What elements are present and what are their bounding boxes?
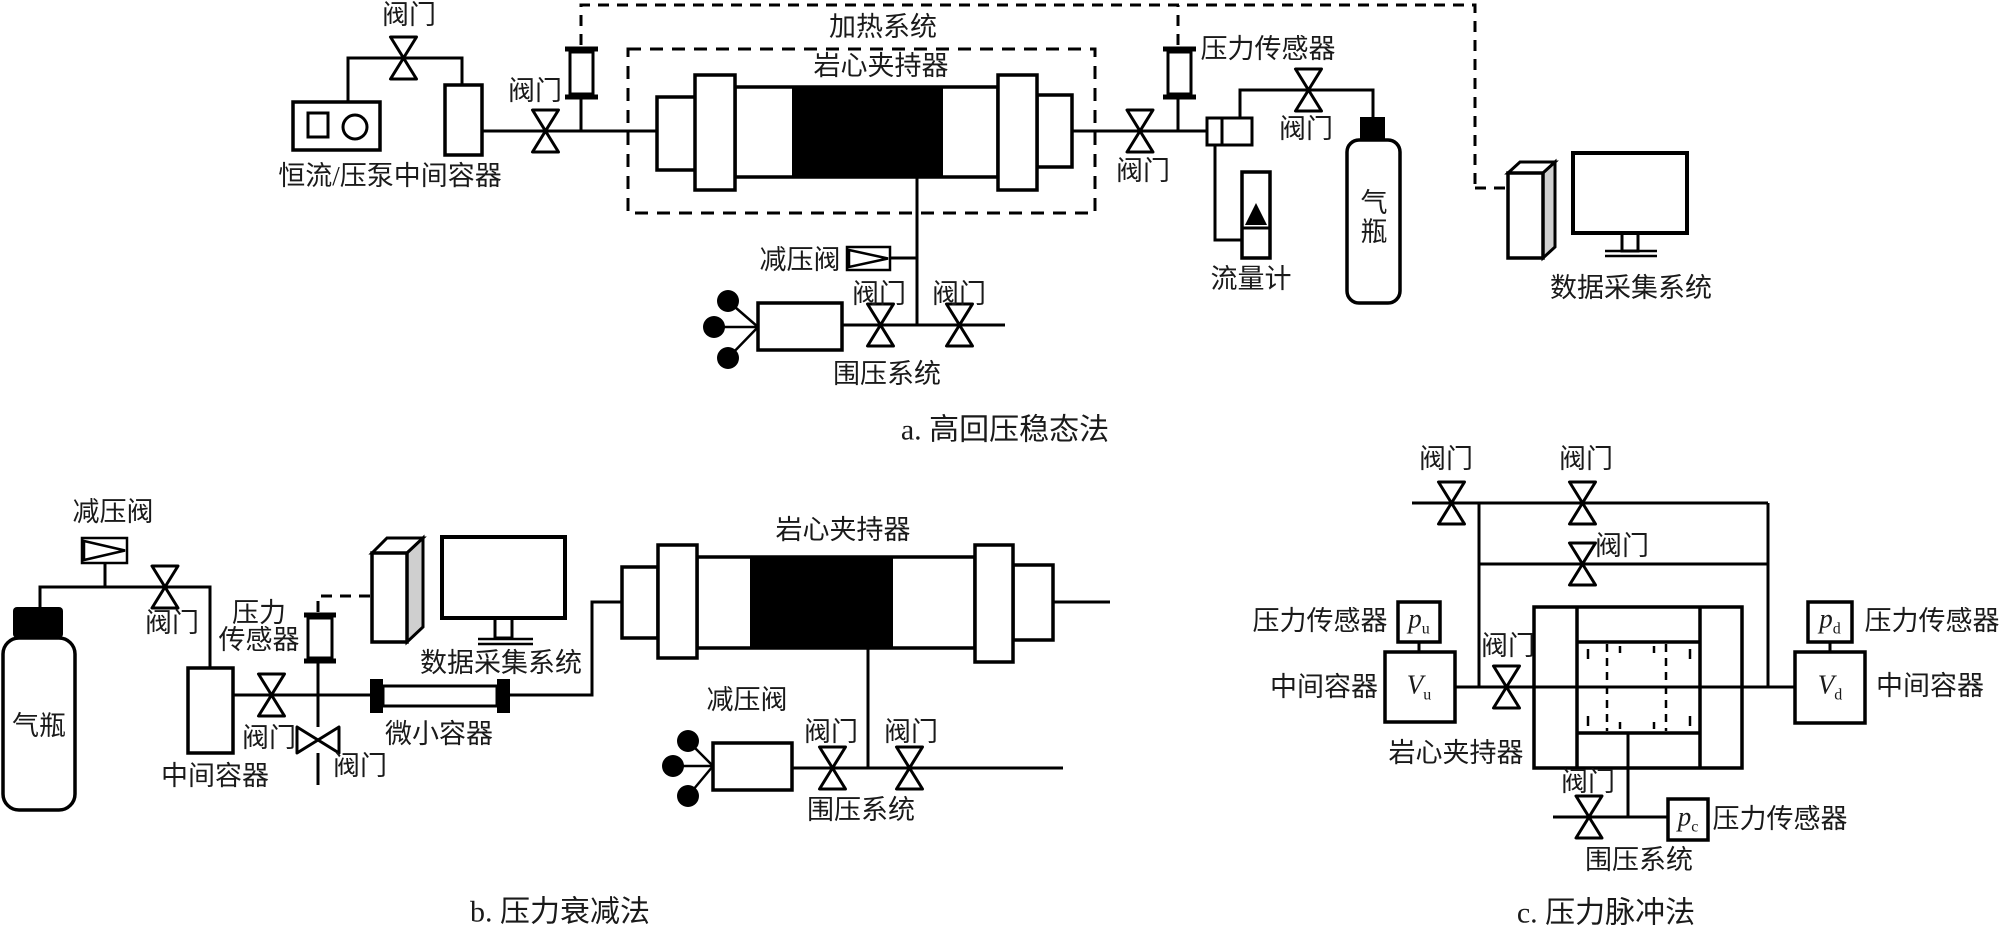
pressure-sensor-icon: [565, 49, 598, 97]
schematic-linework: [0, 0, 2009, 933]
confining-system-label: 围压系统: [833, 360, 941, 390]
flow-meter-icon: [1242, 172, 1270, 258]
core-holder-label: 岩心夹持器: [1389, 739, 1524, 769]
valve-label: 阀门: [1116, 157, 1170, 187]
figure-canvas: 阀门 恒流/压泵中间容器 阀门 加热系统 岩心夹持器 阀门 压力传感器 阀门 气…: [0, 0, 2009, 933]
daq-signal-dashed-line: [318, 596, 371, 612]
pc-value: pc: [1678, 801, 1699, 836]
intermediate-container-label: 中间容器: [1270, 673, 1378, 703]
confining-pump: [662, 730, 792, 807]
pd-value: pd: [1819, 603, 1841, 638]
vu-value: Vu: [1407, 669, 1432, 704]
daq-label: 数据采集系统: [1550, 274, 1712, 304]
confining-pump: [703, 290, 842, 369]
valve-label: 阀门: [1595, 532, 1649, 562]
caption-a: a. 高回压稳态法: [901, 414, 1109, 447]
core-holder: [657, 75, 1072, 190]
relief-valve-label: 减压阀: [73, 498, 154, 528]
relief-valve-label: 减压阀: [760, 246, 841, 276]
diagram-a-schematic: [293, 5, 1687, 369]
core-holder-label: 岩心夹持器: [776, 516, 911, 546]
pressure-sensor-label: 压力传感器: [1253, 607, 1388, 637]
pressure-sensor-label-line2: 传感器: [219, 627, 300, 654]
intermediate-container-box: [445, 85, 482, 155]
valve-label: 阀门: [1559, 445, 1613, 475]
valve-label: 阀门: [1481, 632, 1535, 662]
pressure-sensor-label: 压力传感器: [1201, 35, 1336, 65]
intermediate-container-label: 中间容器: [161, 762, 269, 792]
caption-c: c. 压力脉冲法: [1517, 897, 1695, 930]
pressure-sensor-label: 压力 传感器: [219, 600, 300, 654]
monitor-icon: [1573, 153, 1687, 256]
valve-label: 阀门: [932, 280, 986, 310]
gas-cylinder: [3, 607, 75, 810]
valve-label: 阀门: [1279, 115, 1333, 145]
valve-label: 阀门: [382, 1, 436, 31]
micro-container: [370, 679, 510, 713]
daq-label: 数据采集系统: [420, 649, 582, 679]
pu-value: pu: [1408, 603, 1430, 638]
valve-label: 阀门: [145, 609, 199, 639]
gas-cylinder-label: 气瓶: [1358, 189, 1390, 247]
pressure-sensor-label: 压力传感器: [1713, 805, 1848, 835]
pump-container-label: 恒流/压泵中间容器: [278, 162, 502, 192]
caption-b: b. 压力衰减法: [470, 896, 650, 929]
valve-label: 阀门: [1561, 768, 1615, 798]
relief-valve-label: 减压阀: [707, 686, 788, 716]
intermediate-container-box: [188, 668, 233, 753]
heating-system-label: 加热系统: [829, 13, 937, 43]
pressure-sensor-icon: [304, 615, 336, 661]
junction-box: [1207, 118, 1252, 145]
valve-label: 阀门: [242, 724, 296, 754]
vent-valve-icon: [297, 727, 339, 753]
core-holder: [622, 545, 1053, 662]
pressure-sensor-icon: [1163, 49, 1196, 97]
pressure-sensor-label-line1: 压力: [219, 600, 300, 627]
confining-system-label: 围压系统: [1585, 846, 1693, 876]
core-sample: [750, 557, 893, 648]
computer-tower-icon: [1508, 162, 1555, 258]
gas-cylinder-label: 气瓶: [12, 712, 66, 742]
valve-label: 阀门: [508, 77, 562, 107]
core-holder-label: 岩心夹持器: [814, 52, 949, 82]
valve-label: 阀门: [804, 718, 858, 748]
pump-unit: [293, 102, 380, 150]
intermediate-container-label: 中间容器: [1876, 672, 1984, 702]
relief-valve-icon: [82, 538, 127, 563]
micro-container-label: 微小容器: [385, 720, 493, 750]
core-sample: [792, 87, 943, 177]
valve-label: 阀门: [884, 718, 938, 748]
valve-label: 阀门: [1419, 445, 1473, 475]
flowmeter-pipe: [1215, 145, 1242, 240]
confining-system-label: 围压系统: [807, 796, 915, 826]
computer-tower-icon: [372, 538, 423, 642]
pressure-sensor-label: 压力传感器: [1865, 607, 2000, 637]
monitor-icon: [442, 537, 565, 644]
flow-meter-label: 流量计: [1211, 265, 1292, 295]
valve-label: 阀门: [852, 280, 906, 310]
vd-value: Vd: [1818, 669, 1843, 704]
valve-label: 阀门: [333, 752, 387, 782]
relief-valve-icon: [847, 247, 890, 270]
